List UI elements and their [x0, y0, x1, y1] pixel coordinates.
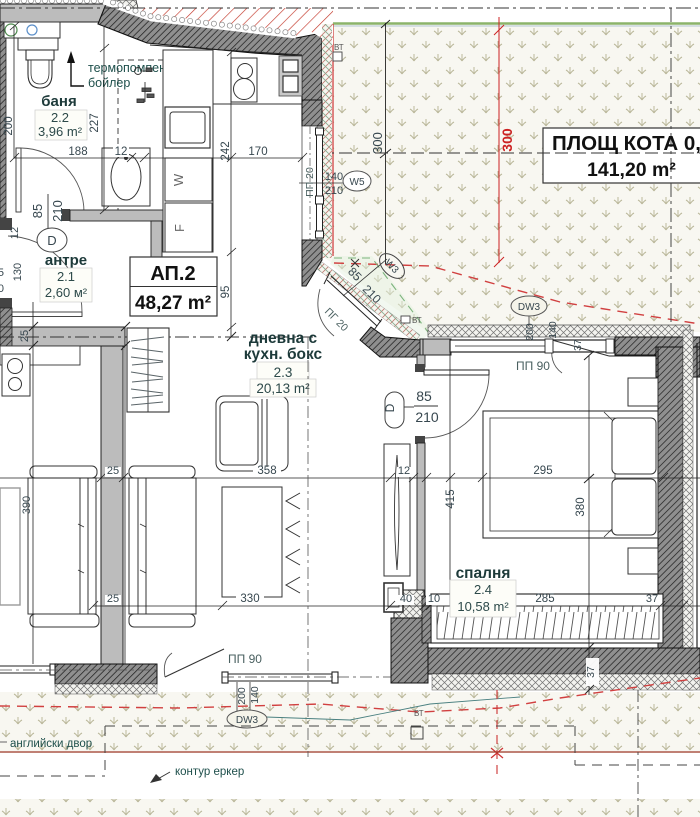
svg-text:188: 188: [68, 146, 87, 158]
svg-text:85: 85: [30, 204, 45, 218]
svg-text:25: 25: [107, 593, 119, 605]
svg-text:контур еркер: контур еркер: [175, 766, 244, 778]
svg-text:3,96 m²: 3,96 m²: [38, 124, 83, 139]
svg-text:английски двор: английски двор: [10, 738, 92, 750]
svg-text:антре: антре: [45, 252, 87, 269]
svg-text:25: 25: [19, 330, 31, 342]
svg-text:358: 358: [257, 465, 276, 477]
svg-text:20,13 m²: 20,13 m²: [256, 381, 310, 396]
svg-text:200: 200: [524, 323, 536, 341]
svg-text:48,27 m²: 48,27 m²: [135, 293, 211, 314]
svg-text:D: D: [47, 233, 56, 248]
svg-text:25: 25: [107, 465, 119, 477]
svg-text:10,58 m²: 10,58 m²: [457, 599, 509, 614]
svg-text:40: 40: [400, 593, 412, 605]
svg-text:170: 170: [248, 146, 267, 158]
svg-text:баня: баня: [41, 93, 76, 110]
svg-text:АП.2: АП.2: [150, 263, 195, 285]
svg-text:2,60 м²: 2,60 м²: [45, 285, 88, 300]
svg-text:37: 37: [585, 666, 597, 678]
svg-text:210: 210: [325, 185, 343, 197]
svg-text:415: 415: [445, 489, 457, 508]
svg-text:200: 200: [3, 116, 15, 135]
svg-text:термопомпен: термопомпен: [88, 61, 166, 75]
svg-text:бойлер: бойлер: [88, 76, 130, 90]
svg-text:D: D: [383, 403, 397, 412]
svg-text:2.1: 2.1: [57, 269, 75, 284]
svg-text:380: 380: [575, 497, 587, 516]
svg-text:12: 12: [115, 146, 128, 158]
svg-text:2.2: 2.2: [51, 110, 69, 125]
svg-text:210: 210: [415, 409, 439, 425]
svg-text:295: 295: [533, 465, 552, 477]
svg-text:130: 130: [12, 263, 24, 281]
svg-text:200: 200: [236, 687, 248, 705]
svg-text:300: 300: [499, 128, 515, 152]
svg-text:ВТ: ВТ: [412, 316, 422, 325]
svg-text:ВТ: ВТ: [414, 709, 424, 718]
svg-text:0: 0: [0, 283, 4, 295]
svg-text:12: 12: [398, 465, 410, 477]
svg-text:ПЛОЩ КОТА 0,0: ПЛОЩ КОТА 0,0: [552, 132, 700, 155]
svg-text:37: 37: [572, 339, 584, 351]
svg-text:37: 37: [646, 593, 658, 605]
svg-text:DW3: DW3: [236, 715, 259, 726]
svg-text:2.4: 2.4: [474, 582, 492, 597]
svg-text:210: 210: [50, 200, 65, 222]
svg-text:85: 85: [416, 388, 432, 404]
svg-text:кухн. бокс: кухн. бокс: [244, 346, 323, 363]
svg-text:W: W: [171, 173, 186, 186]
svg-text:227: 227: [89, 113, 101, 132]
svg-text:F: F: [172, 224, 187, 232]
svg-text:спалня: спалня: [456, 565, 511, 582]
svg-text:242: 242: [220, 141, 232, 160]
svg-text:2.3: 2.3: [274, 365, 293, 380]
svg-text:ВТ: ВТ: [334, 43, 344, 52]
svg-text:285: 285: [535, 593, 554, 605]
svg-text:140: 140: [325, 171, 343, 183]
svg-text:W5: W5: [350, 177, 365, 188]
svg-text:330: 330: [240, 593, 259, 605]
svg-text:ПП 90: ПП 90: [228, 652, 262, 666]
svg-text:390: 390: [21, 496, 33, 514]
svg-text:ПП 90: ПП 90: [516, 359, 550, 373]
svg-text:10: 10: [428, 593, 440, 605]
svg-text:140: 140: [547, 321, 559, 339]
svg-text:ПП 20: ПП 20: [304, 167, 316, 197]
svg-text:12: 12: [9, 227, 21, 239]
svg-text:DW3: DW3: [518, 302, 541, 313]
svg-text:95: 95: [220, 286, 232, 299]
svg-text:дневна с: дневна с: [249, 330, 318, 347]
svg-text:5: 5: [0, 267, 4, 279]
svg-text:141,20 m²: 141,20 m²: [587, 159, 676, 181]
svg-text:140: 140: [249, 686, 261, 704]
svg-text:300: 300: [370, 132, 385, 154]
